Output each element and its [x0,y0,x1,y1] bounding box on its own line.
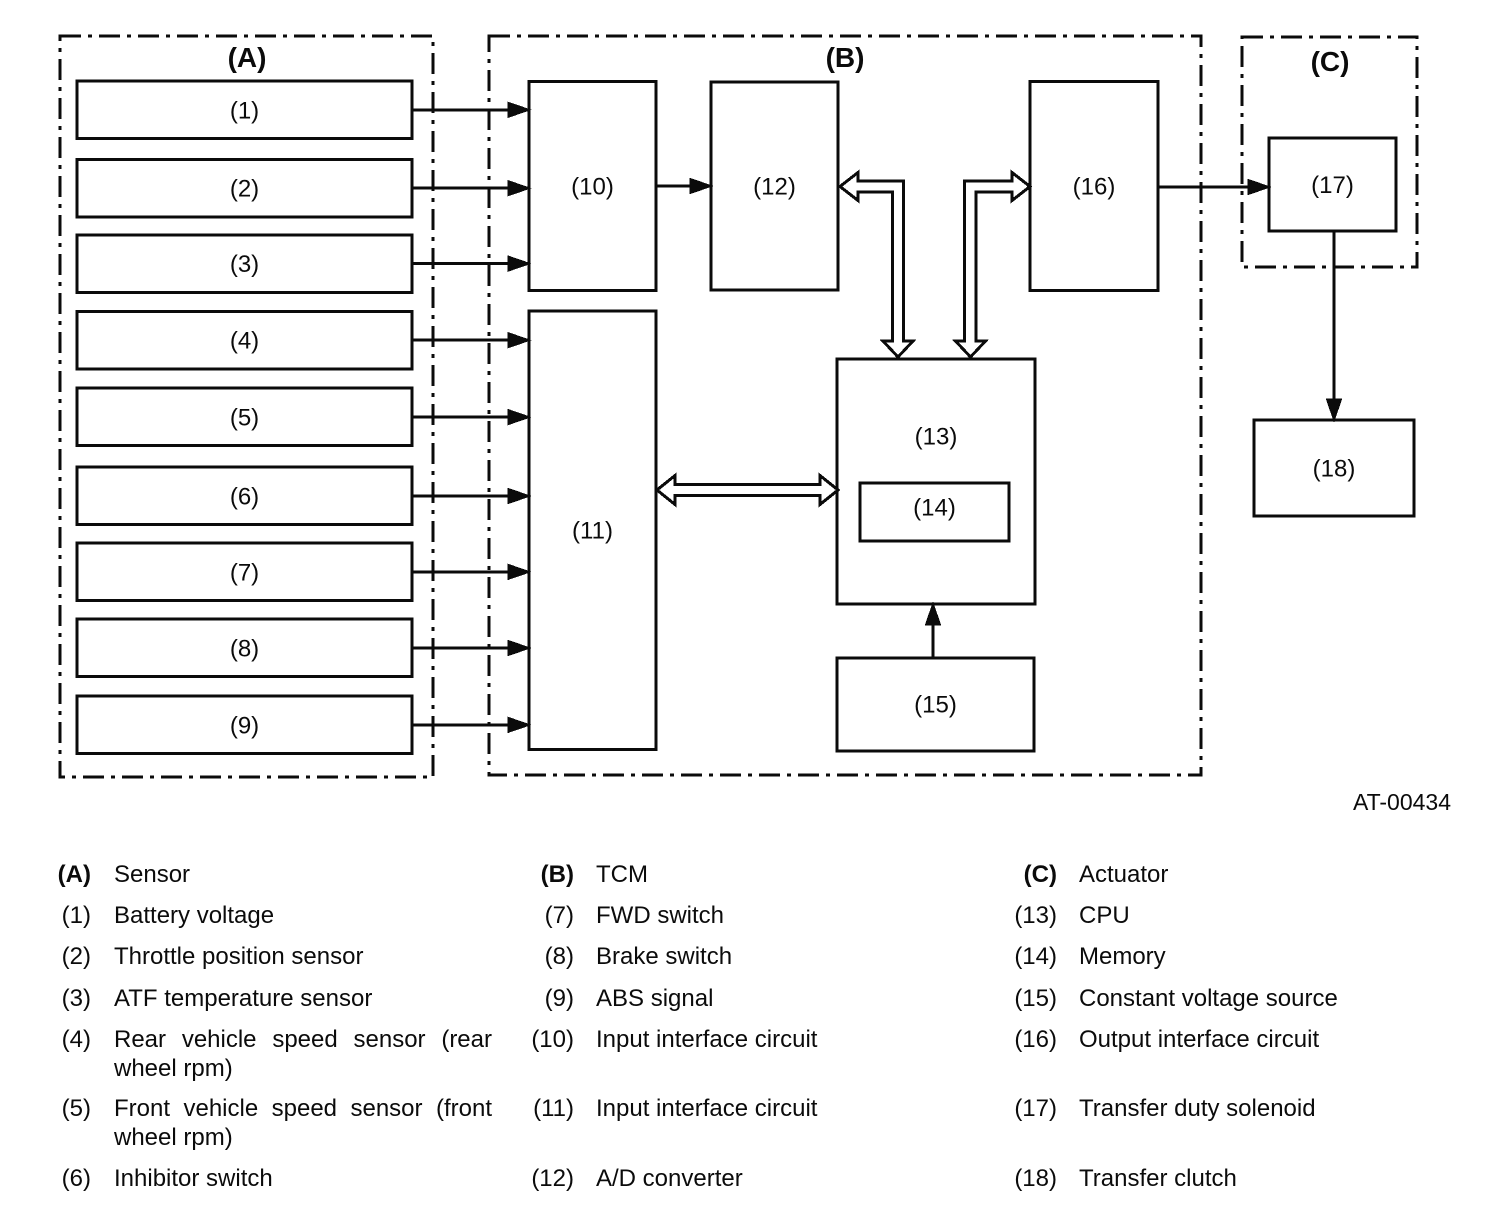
svg-text:(13): (13) [915,424,958,451]
svg-text:(17): (17) [1311,172,1354,199]
svg-text:(C): (C) [1311,46,1350,77]
svg-text:(5): (5) [230,405,259,432]
svg-text:(12): (12) [753,174,796,201]
svg-text:(16): (16) [1073,174,1116,201]
svg-text:(18): (18) [1313,456,1356,483]
svg-text:(10): (10) [571,174,614,201]
svg-text:(A): (A) [228,42,267,73]
svg-text:(15): (15) [914,692,957,719]
svg-text:(6): (6) [230,484,259,511]
svg-text:(14): (14) [913,495,956,522]
svg-text:(9): (9) [230,712,259,739]
svg-text:(8): (8) [230,636,259,663]
svg-text:AT-00434: AT-00434 [1353,789,1451,815]
svg-text:(2): (2) [230,176,259,203]
svg-text:(B): (B) [826,42,865,73]
svg-text:(7): (7) [230,559,259,586]
svg-text:(4): (4) [230,328,259,355]
svg-text:(1): (1) [230,97,259,124]
svg-text:(3): (3) [230,251,259,278]
svg-text:(11): (11) [572,518,613,545]
